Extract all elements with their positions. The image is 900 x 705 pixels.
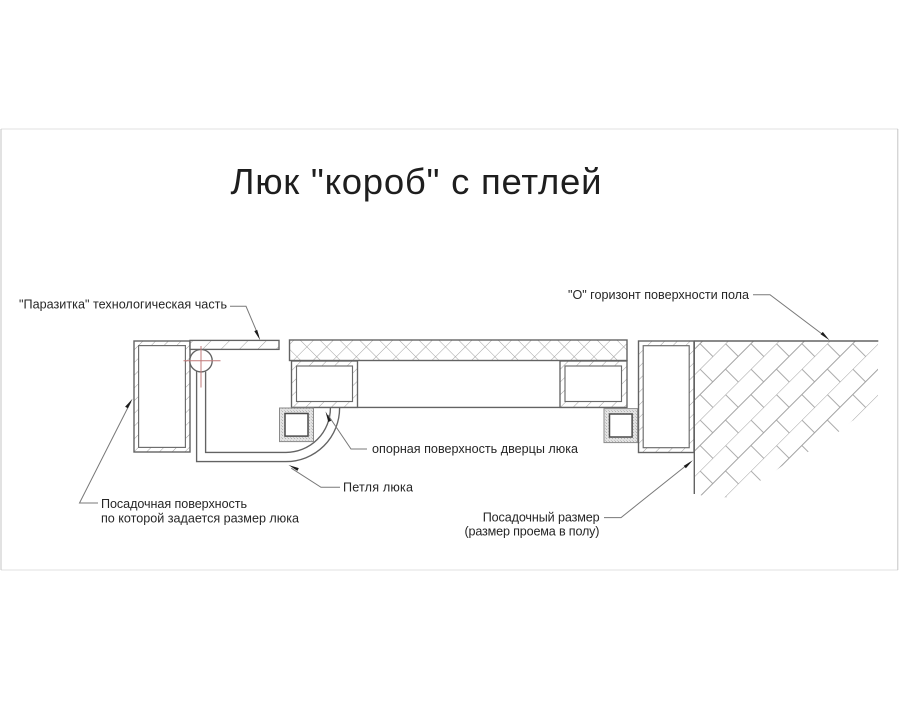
svg-text:Посадочный размер: Посадочный размер	[483, 510, 600, 524]
svg-text:"Паразитка" технологическая ча: "Паразитка" технологическая часть	[19, 298, 227, 312]
svg-text:Люк "короб" с петлей: Люк "короб" с петлей	[231, 161, 602, 202]
svg-text:по которой задается размер люк: по которой задается размер люка	[101, 511, 299, 525]
svg-text:(размер проема в полу): (размер проема в полу)	[465, 525, 600, 539]
svg-text:опорная поверхность дверцы люк: опорная поверхность дверцы люка	[372, 442, 578, 456]
svg-text:"О" горизонт поверхности пола: "О" горизонт поверхности пола	[568, 288, 749, 302]
svg-text:Петля люка: Петля люка	[343, 480, 413, 494]
svg-text:Посадочная поверхность: Посадочная поверхность	[101, 497, 247, 511]
